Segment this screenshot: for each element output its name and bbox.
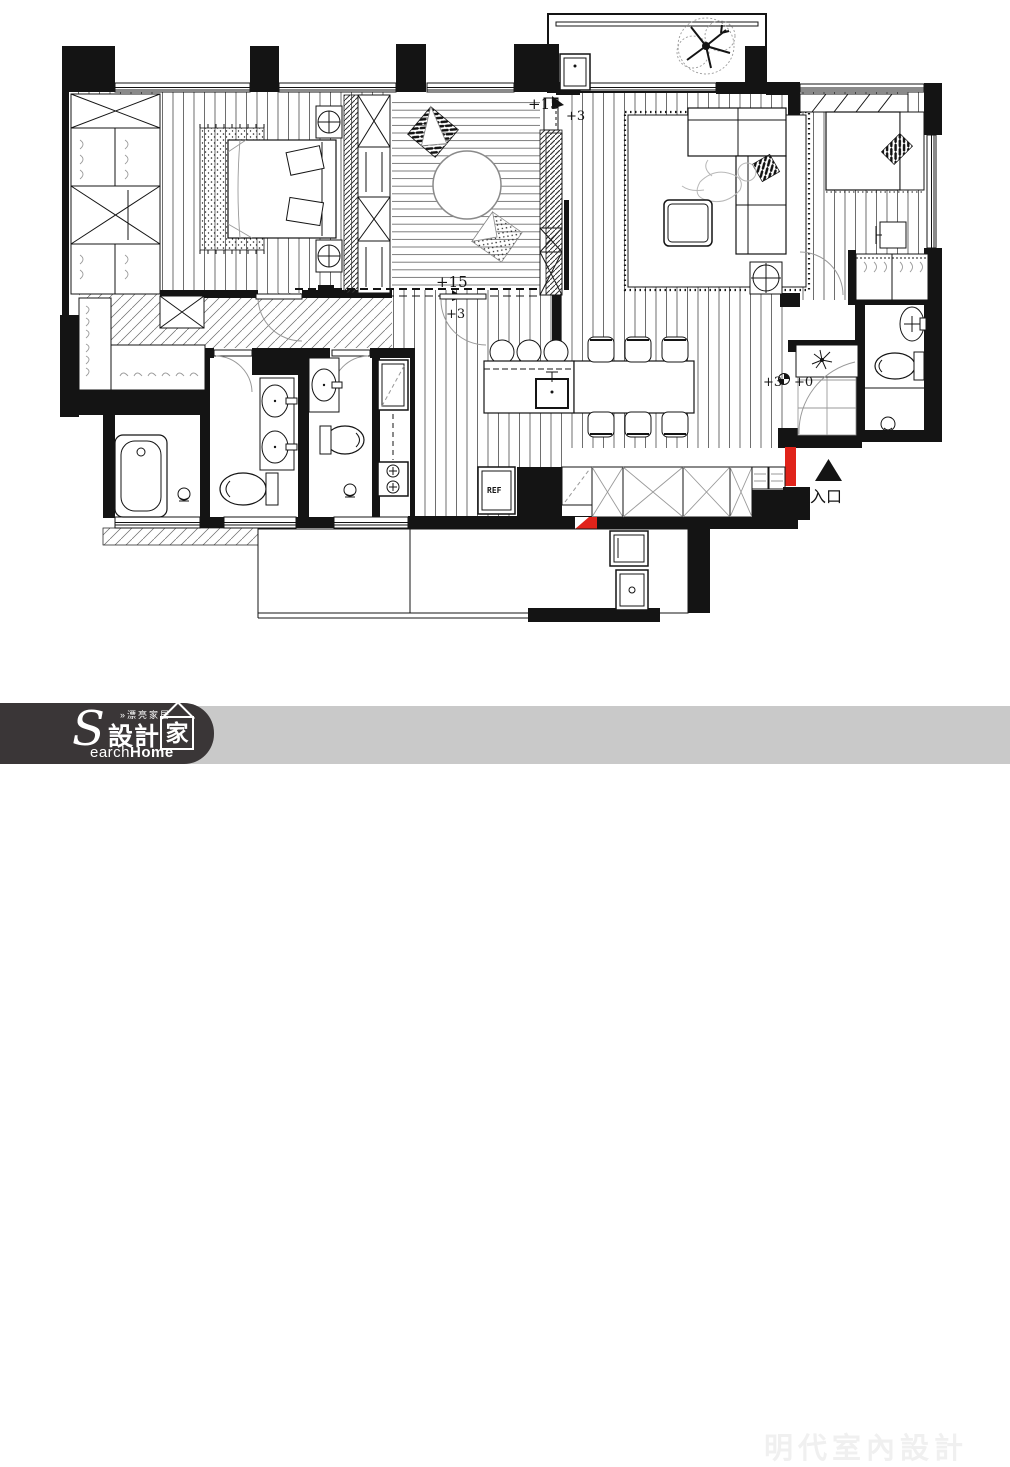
entrance-arrow [815,459,842,481]
balcony [548,14,766,92]
company-watermark: 明代室內設計 [764,1425,968,1467]
bathroom2 [309,350,370,497]
wardrobe-right [344,95,390,293]
dining-table [574,361,694,413]
bedroom2-side-table [876,222,906,248]
entry-door-red-bar [785,447,796,486]
entrance-marker: 入口 [810,459,842,506]
level-platform-top-lower: +3 [566,109,585,124]
hall-diagonal-floor [205,293,392,348]
shoe-cabinet [752,467,810,520]
floor-plan: +15 +3 +15 +3 [0,0,1010,706]
window-bedroom2 [800,84,924,92]
utility-balcony [258,529,688,618]
entry-bench [796,345,858,377]
bath3-toilet [875,352,924,380]
window-top-3 [427,83,514,92]
bath2-drain [344,484,356,497]
x-cabinets [592,467,752,517]
hall-door-leaf [440,294,486,299]
window-living [580,83,716,92]
window-top-2 [279,83,396,92]
entry-level-marker: +3 +0 [763,374,813,391]
bathroom3 [865,307,926,432]
master-door-leaf [256,294,302,299]
bedroom2-bed [826,112,924,192]
bar-stools [490,340,568,364]
black-cabinet [517,467,562,517]
washer-2 [616,570,648,610]
bathtub [115,435,167,517]
logo-brand-latin: earchHome [90,744,174,761]
nightstand-top [316,106,342,138]
floor-plan-canvas: +15 +3 +15 +3 [0,0,1010,706]
window-right [927,135,936,248]
coffee-table [664,200,712,246]
island-counter [484,361,574,413]
searchhome-logo: »漂亮家居 S 設計 家 earchHome [0,703,214,764]
fridge: REF [478,467,515,514]
bath3-sink [900,307,926,341]
bedroom2-headboard [800,94,908,112]
window-top-1 [115,83,250,92]
level-platform-bottom-lower: +3 [446,307,465,322]
stove [378,462,408,496]
window-bath1 [224,517,296,528]
floor-lamp [750,262,782,294]
balcony-door [560,54,590,90]
bedroom2-wardrobe [856,254,928,300]
bed [228,140,336,238]
window-bathtub [115,517,200,528]
nightstand-bottom [316,240,342,272]
tub-room-drain [178,488,190,501]
logo-brand-latin-light: earch [90,744,130,761]
round-table [433,151,501,219]
bath1-door-arc [216,356,252,392]
washer-1 [610,531,648,566]
bath2-vanity [309,358,342,412]
bath1-vanity [260,378,297,470]
bath3-shower-drain [881,417,895,432]
bath1-toilet [220,473,278,505]
entrance-label: 入口 [810,489,842,506]
bath2-toilet [320,426,364,454]
tall-cabinet [378,360,408,410]
exterior-ledge [103,528,258,545]
fridge-label: REF [487,486,502,495]
kitchen-units [378,360,408,496]
level-entry-right: +0 [794,375,813,390]
bath2-door-leaf [332,350,370,356]
bath1-door-leaf [214,350,252,356]
wardrobe-left [71,94,160,294]
level-platform-bottom-upper: +15 [436,273,468,291]
logo-brand-latin-bold: Home [130,744,174,761]
section-marker [575,517,597,529]
tv [564,200,569,290]
window-bath2 [334,517,408,528]
